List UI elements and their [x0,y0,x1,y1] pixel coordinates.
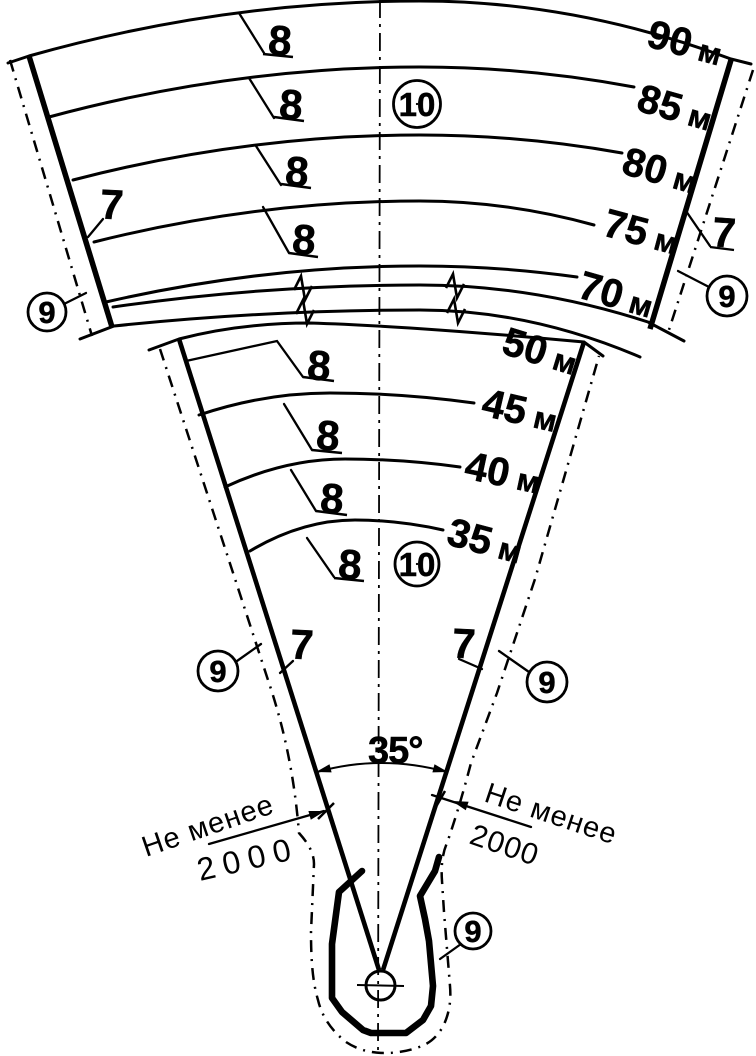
svg-text:8: 8 [291,215,318,264]
svg-text:8: 8 [267,16,294,65]
svg-text:9: 9 [209,654,226,689]
svg-text:8: 8 [315,411,342,460]
svg-text:9: 9 [464,914,481,949]
svg-text:7: 7 [289,620,315,668]
svg-text:7: 7 [451,619,477,667]
svg-text:35°: 35° [368,730,422,772]
svg-text:9: 9 [718,279,735,314]
svg-text:8: 8 [306,341,333,390]
svg-text:8: 8 [337,540,364,589]
svg-text:8: 8 [278,80,305,129]
svg-text:10: 10 [399,546,436,583]
svg-text:7: 7 [99,180,125,228]
svg-text:9: 9 [38,295,55,330]
svg-text:9: 9 [538,665,555,700]
svg-text:8: 8 [284,147,311,196]
svg-text:10: 10 [399,86,436,123]
svg-text:7: 7 [711,208,738,257]
svg-text:8: 8 [319,474,346,523]
